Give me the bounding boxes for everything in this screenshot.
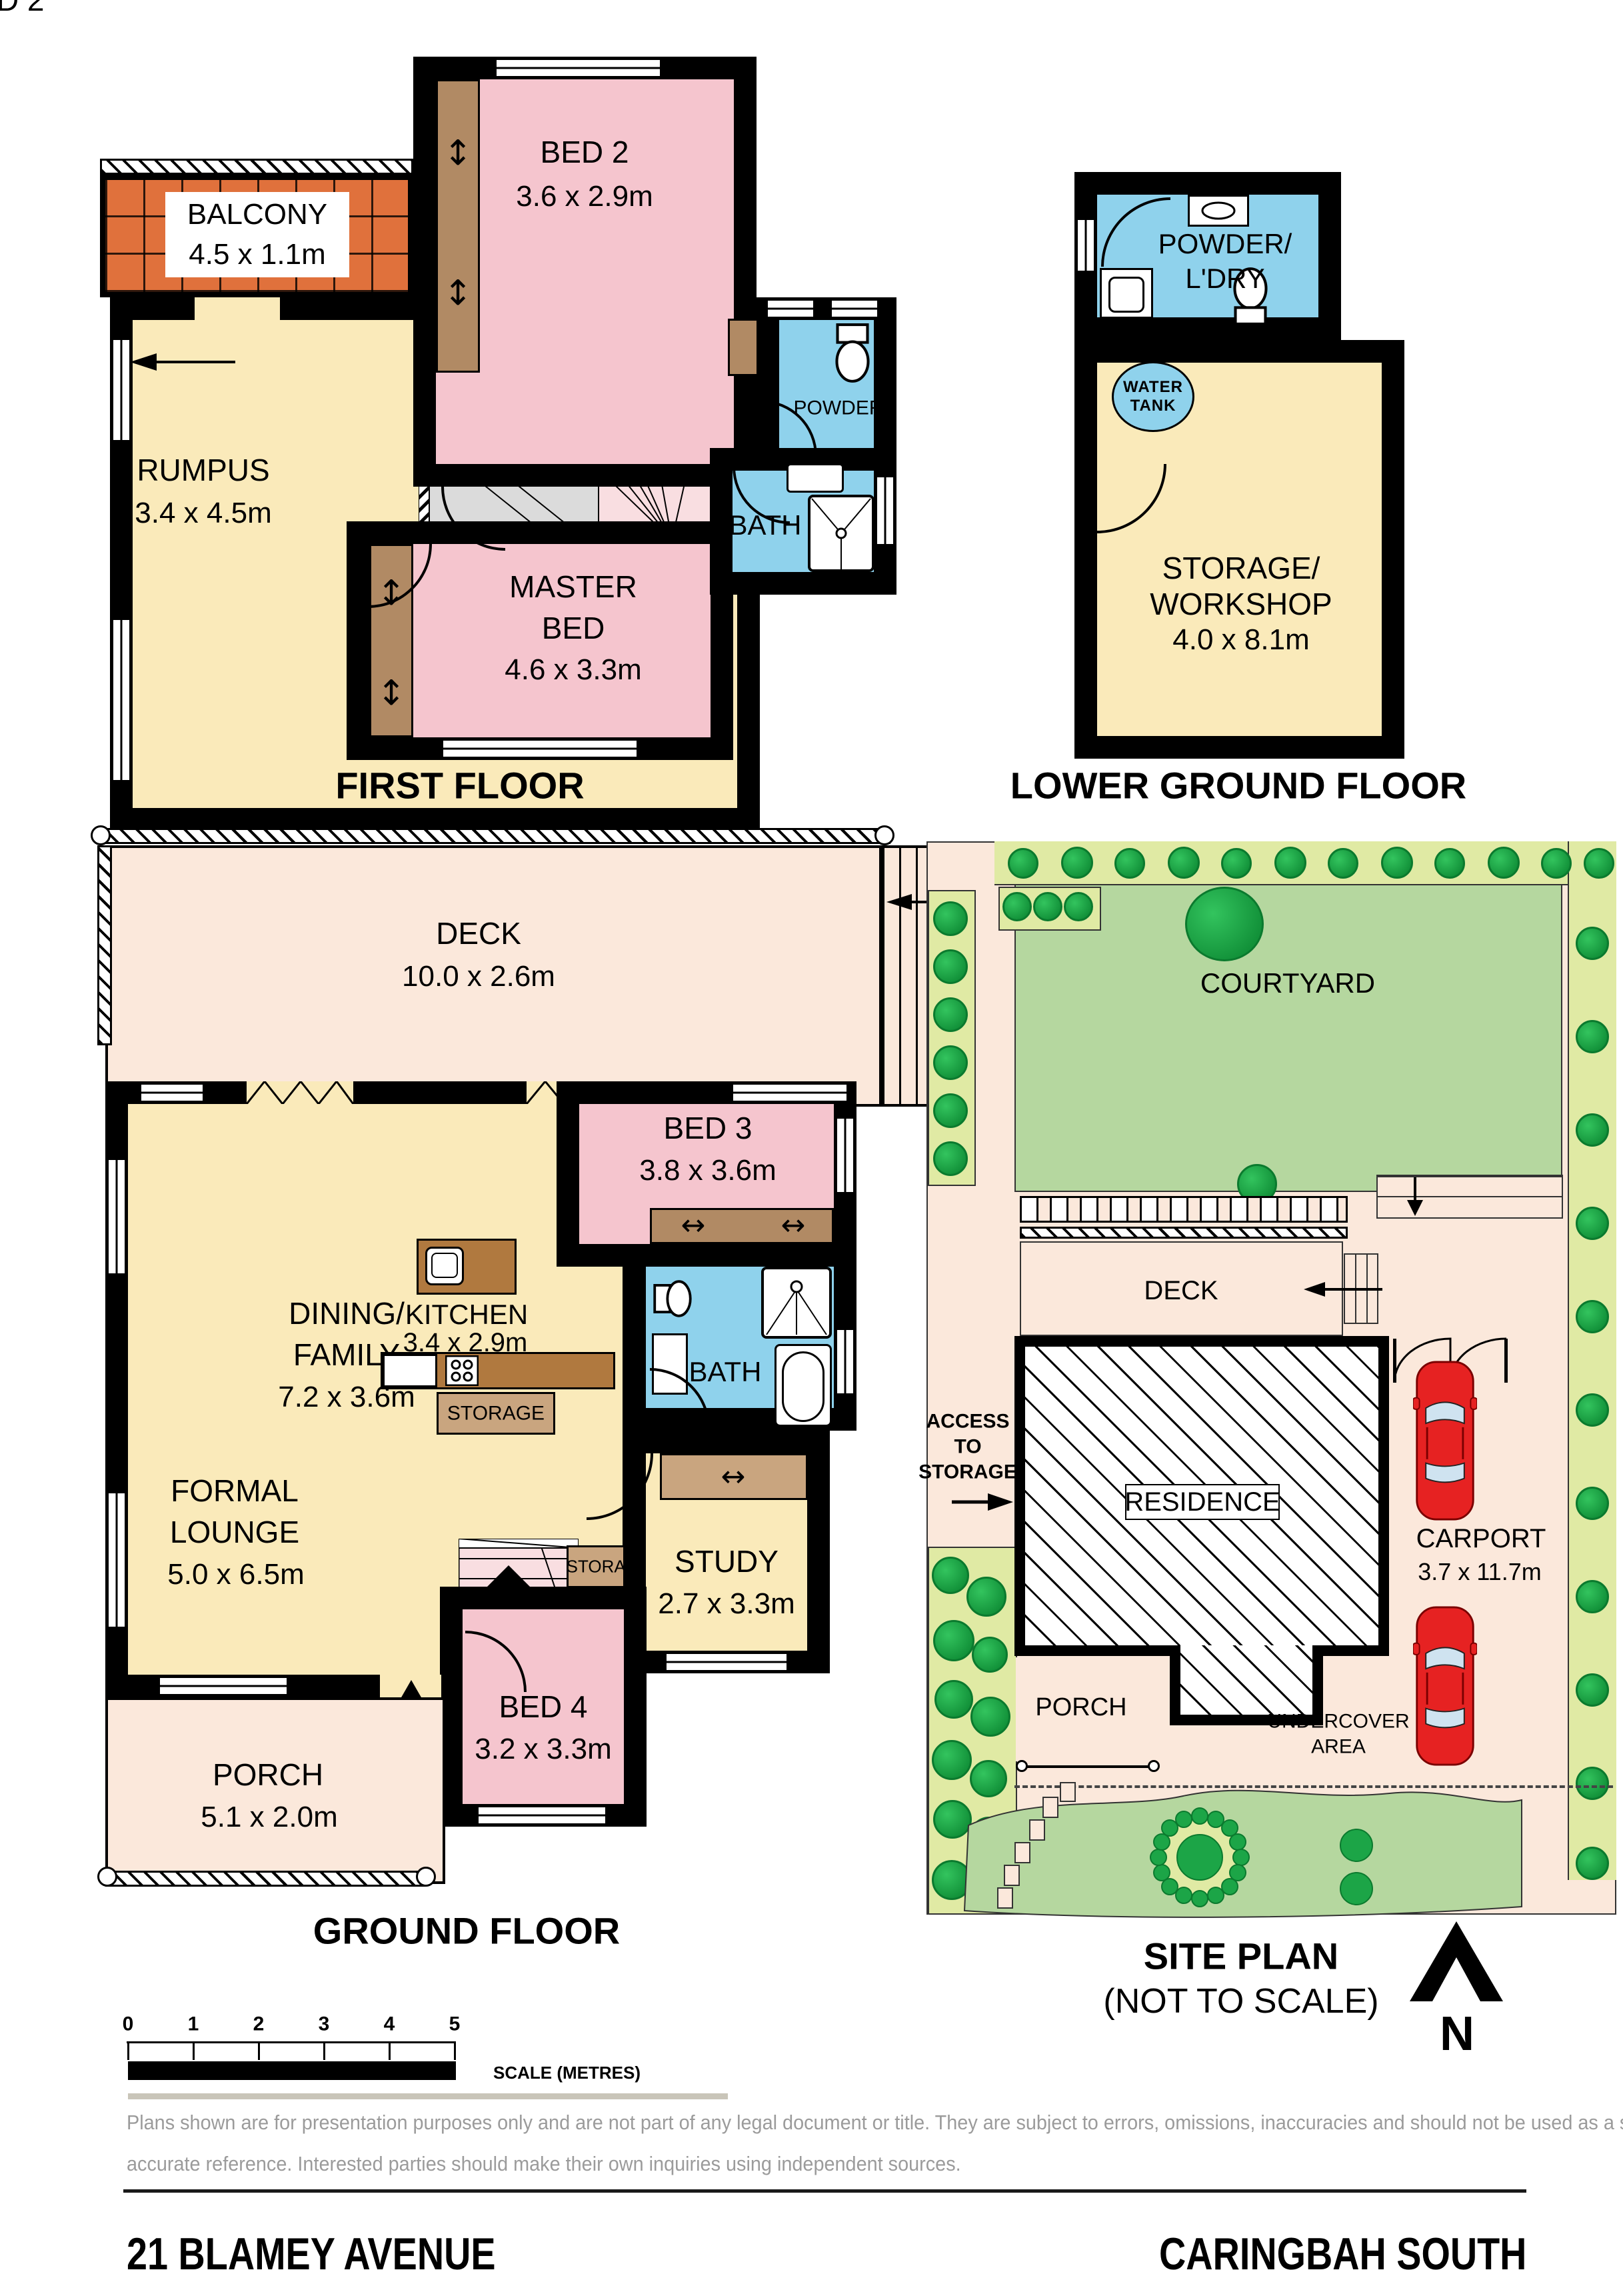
tree-icon <box>1576 1207 1609 1240</box>
balcony-step <box>195 297 280 320</box>
room-label: BED 2 <box>0 0 44 16</box>
cooktop-icon <box>445 1355 479 1386</box>
tree-icon <box>1274 847 1306 879</box>
tree-icon <box>933 997 968 1032</box>
site-deck-label: DECK <box>1144 1277 1218 1305</box>
railing-post <box>91 825 111 845</box>
scale-tick-label: 0 <box>123 2013 134 2035</box>
porch-dims: 5.1 x 2.0m <box>201 1802 337 1833</box>
ground-floor-title: GROUND FLOOR <box>313 1909 620 1953</box>
footer-rule <box>123 2189 1526 2193</box>
door-arrow-icon <box>130 352 237 372</box>
tree-icon <box>934 1680 973 1719</box>
disclaimer-line1: Plans shown are for presentation purpose… <box>127 2111 1623 2135</box>
tree-icon <box>1221 848 1252 879</box>
tree-icon <box>1584 848 1614 879</box>
tree-icon <box>1576 1847 1609 1880</box>
carport-label: CARPORT <box>1416 1525 1546 1553</box>
scale-tick-label: 4 <box>384 2013 395 2035</box>
lounge-label-formal: FORMAL <box>171 1475 299 1507</box>
scale-ruler-tick <box>454 2041 456 2060</box>
bifold-icon <box>247 1081 353 1104</box>
tree-icon <box>1541 848 1572 879</box>
bed3-dims: 3.8 x 3.6m <box>639 1155 776 1186</box>
suburb-label: CARINGBAH SOUTH <box>1159 2228 1526 2280</box>
car-icon <box>1413 1599 1477 1773</box>
carport-dims: 3.7 x 11.7m <box>1418 1559 1541 1585</box>
scale-ruler-tick <box>258 2041 260 2060</box>
window <box>667 1651 787 1673</box>
window <box>874 477 896 544</box>
window <box>733 1081 846 1104</box>
rumpus-label: RUMPUS <box>137 454 269 486</box>
north-arrow-icon <box>1410 1921 1503 2001</box>
sink-basin-icon <box>1200 200 1237 221</box>
bed4-label: BED 4 <box>499 1691 588 1723</box>
lounge-label-lounge: LOUNGE <box>170 1516 299 1548</box>
tree-icon <box>972 1637 1008 1673</box>
tree-icon <box>933 1093 968 1128</box>
master-dims: 4.6 x 3.3m <box>505 655 641 685</box>
water-tank-label2: TANK <box>1114 397 1192 415</box>
scale-ruler-tick <box>127 2041 129 2060</box>
scale-bar-fill <box>128 2061 456 2080</box>
bath-gf-label: BATH <box>689 1357 762 1387</box>
robe-arrow-icon: ↕ <box>443 273 473 313</box>
wardrobe <box>650 1208 834 1244</box>
tree-icon <box>1576 1393 1609 1427</box>
window <box>110 620 133 780</box>
study-label: STUDY <box>675 1545 779 1577</box>
balcony-label: BALCONY <box>187 199 327 230</box>
robe-arrow-icon: ↔ <box>721 1460 746 1494</box>
tree-icon <box>1002 892 1032 921</box>
storage-workshop-dims: 4.0 x 8.1m <box>1172 625 1309 655</box>
railing-post <box>416 1867 436 1887</box>
tree-icon <box>1381 847 1413 879</box>
window <box>141 1081 203 1104</box>
scale-tick-label: 2 <box>253 2013 265 2035</box>
scale-tick-label: 1 <box>188 2013 199 2035</box>
tree-icon <box>932 1557 969 1594</box>
bathtub-icon <box>775 1344 832 1427</box>
access-label3: STORAGE <box>918 1461 1017 1483</box>
tree-icon <box>1576 927 1609 960</box>
tree-icon <box>1434 848 1465 879</box>
master-label2: BED <box>542 612 605 644</box>
tree-icon <box>933 901 968 936</box>
floorplan-sheet: ↕ ↕ ↕ ↕ BED 2 BED 2 3.6 x 2.9m BALCONY 4… <box>0 0 1623 2296</box>
site-porch-label: PORCH <box>1035 1695 1126 1721</box>
tree-icon <box>1033 892 1062 921</box>
window <box>443 737 637 760</box>
tree-icon <box>933 949 968 984</box>
scale-ruler-line <box>127 2041 456 2043</box>
kitchen-label: KITCHEN <box>405 1300 528 1329</box>
railing-post <box>874 825 894 845</box>
balustrade <box>1020 1196 1348 1223</box>
north-label: N <box>1440 2009 1474 2060</box>
porch-rail-site <box>1020 1765 1153 1768</box>
tree-icon <box>1576 1767 1609 1800</box>
water-tank-label1: WATER <box>1114 378 1192 397</box>
window <box>832 297 877 320</box>
scale-tick-label: 5 <box>449 2013 461 2035</box>
window <box>110 340 133 440</box>
undercover-label2: AREA <box>1311 1736 1366 1757</box>
tree-icon <box>1576 1113 1609 1147</box>
tree-icon <box>1064 892 1093 921</box>
window <box>768 297 813 320</box>
bed3-label: BED 3 <box>664 1112 753 1144</box>
tree-icon <box>966 1577 1006 1617</box>
shower-icon <box>808 495 874 572</box>
tree-icon <box>1114 848 1145 879</box>
access-label2: TO <box>954 1436 981 1457</box>
scale-ruler-tick <box>323 2041 325 2060</box>
tree-icon <box>1576 1580 1609 1613</box>
deck-railing <box>97 828 890 844</box>
laundry-tub-icon <box>1100 268 1153 319</box>
tree-icon <box>1328 848 1358 879</box>
scale-ruler-tick <box>389 2041 391 2060</box>
site-plan-note: (NOT TO SCALE) <box>1103 1981 1378 2021</box>
railing-post <box>1016 1760 1028 1772</box>
tree-icon <box>1185 887 1264 961</box>
window <box>160 1675 287 1697</box>
balcony-railing <box>100 159 413 175</box>
car-icon <box>1413 1353 1477 1528</box>
bed4-dims: 3.2 x 3.3m <box>475 1734 611 1765</box>
window <box>834 1330 856 1393</box>
window <box>479 1804 605 1827</box>
tree-icon <box>1008 848 1038 879</box>
pantry-label: STORAGE <box>447 1403 545 1424</box>
study-dims: 2.7 x 3.3m <box>658 1589 795 1619</box>
tree-icon <box>1576 1020 1609 1053</box>
vanity <box>787 463 844 493</box>
storage-workshop-label1: STORAGE/ <box>1162 552 1320 584</box>
scale-shadow-line <box>128 2093 728 2099</box>
robe-arrow-icon: ↔ <box>781 1209 806 1243</box>
first-floor-title: FIRST FLOOR <box>335 764 584 807</box>
tree-icon <box>1488 847 1520 879</box>
water-tank-icon: WATER TANK <box>1112 361 1194 432</box>
scale-ruler-tick <box>193 2041 195 2060</box>
master-label1: MASTER <box>509 571 637 603</box>
tree-icon <box>1168 847 1200 879</box>
tree-icon <box>1576 1673 1609 1707</box>
courtyard-label: COURTYARD <box>1200 969 1375 998</box>
window <box>105 1493 128 1627</box>
tree-icon <box>1576 1487 1609 1520</box>
disclaimer-line2: accurate reference. Interested parties s… <box>127 2152 961 2176</box>
tree-icon <box>933 1620 974 1661</box>
access-arrow-icon <box>952 1492 1013 1512</box>
tree-icon <box>1061 847 1093 879</box>
railing-post <box>1148 1760 1160 1772</box>
robe-arrow-icon: ↕ <box>443 133 473 173</box>
steps-arrow-icon <box>1405 1177 1425 1216</box>
scale-tick-label: 3 <box>319 2013 330 2035</box>
address-label: 21 BLAMEY AVENUE <box>127 2228 496 2280</box>
window <box>834 1119 856 1192</box>
bed2-dims: 3.6 x 2.9m <box>516 181 653 212</box>
tree-icon <box>933 1045 968 1080</box>
window <box>105 1160 128 1273</box>
tree-icon <box>933 1141 968 1176</box>
garden-strip-right <box>1568 841 1616 1880</box>
deck-dims: 10.0 x 2.6m <box>402 961 555 992</box>
tree-icon <box>932 1740 972 1780</box>
powder-label: POWDER <box>794 397 884 419</box>
storage-workshop-label2: WORKSHOP <box>1150 588 1332 620</box>
wardrobe <box>436 79 480 373</box>
toilet-icon <box>653 1270 692 1327</box>
porch-label: PORCH <box>213 1759 323 1791</box>
railing-post <box>97 1867 117 1887</box>
tree-icon <box>970 1697 1010 1737</box>
lounge-dims: 5.0 x 6.5m <box>167 1559 304 1590</box>
courtyard-steps <box>1376 1175 1563 1219</box>
tree-icon <box>1576 1300 1609 1333</box>
robe-arrow-icon: ↕ <box>377 673 406 713</box>
bed2-label: BED 2 <box>541 136 629 168</box>
window <box>1074 220 1097 271</box>
scale-bar-label: SCALE (METRES) <box>493 2063 641 2083</box>
balcony-dims: 4.5 x 1.1m <box>189 239 325 270</box>
front-lawn <box>963 1779 1523 1920</box>
deck-label: DECK <box>436 917 521 949</box>
robe-arrow-icon: ↔ <box>681 1209 706 1243</box>
site-plan-title: SITE PLAN <box>1144 1935 1338 1978</box>
access-label1: ACCESS <box>926 1411 1009 1432</box>
residence-label: RESIDENCE <box>1124 1488 1280 1516</box>
fridge <box>383 1354 437 1387</box>
dining-label1: DINING/ <box>289 1297 405 1329</box>
toilet-icon <box>832 323 873 385</box>
kitchen-sink-icon <box>425 1247 464 1285</box>
deck-arrow-icon <box>1304 1280 1384 1299</box>
shower-icon <box>761 1267 832 1339</box>
rumpus-dims: 3.4 x 4.5m <box>135 498 271 529</box>
deck-railing-left <box>97 845 112 1045</box>
powder-ldry-label1: POWDER/ <box>1158 229 1292 259</box>
lower-ground-title: LOWER GROUND FLOOR <box>1010 764 1466 807</box>
powder-ldry-label2: L'DRY <box>1185 264 1264 293</box>
porch-railing <box>105 1871 425 1887</box>
undercover-label1: UNDERCOVER <box>1267 1711 1409 1732</box>
window <box>497 57 660 79</box>
deck-rail-site <box>1020 1227 1348 1239</box>
